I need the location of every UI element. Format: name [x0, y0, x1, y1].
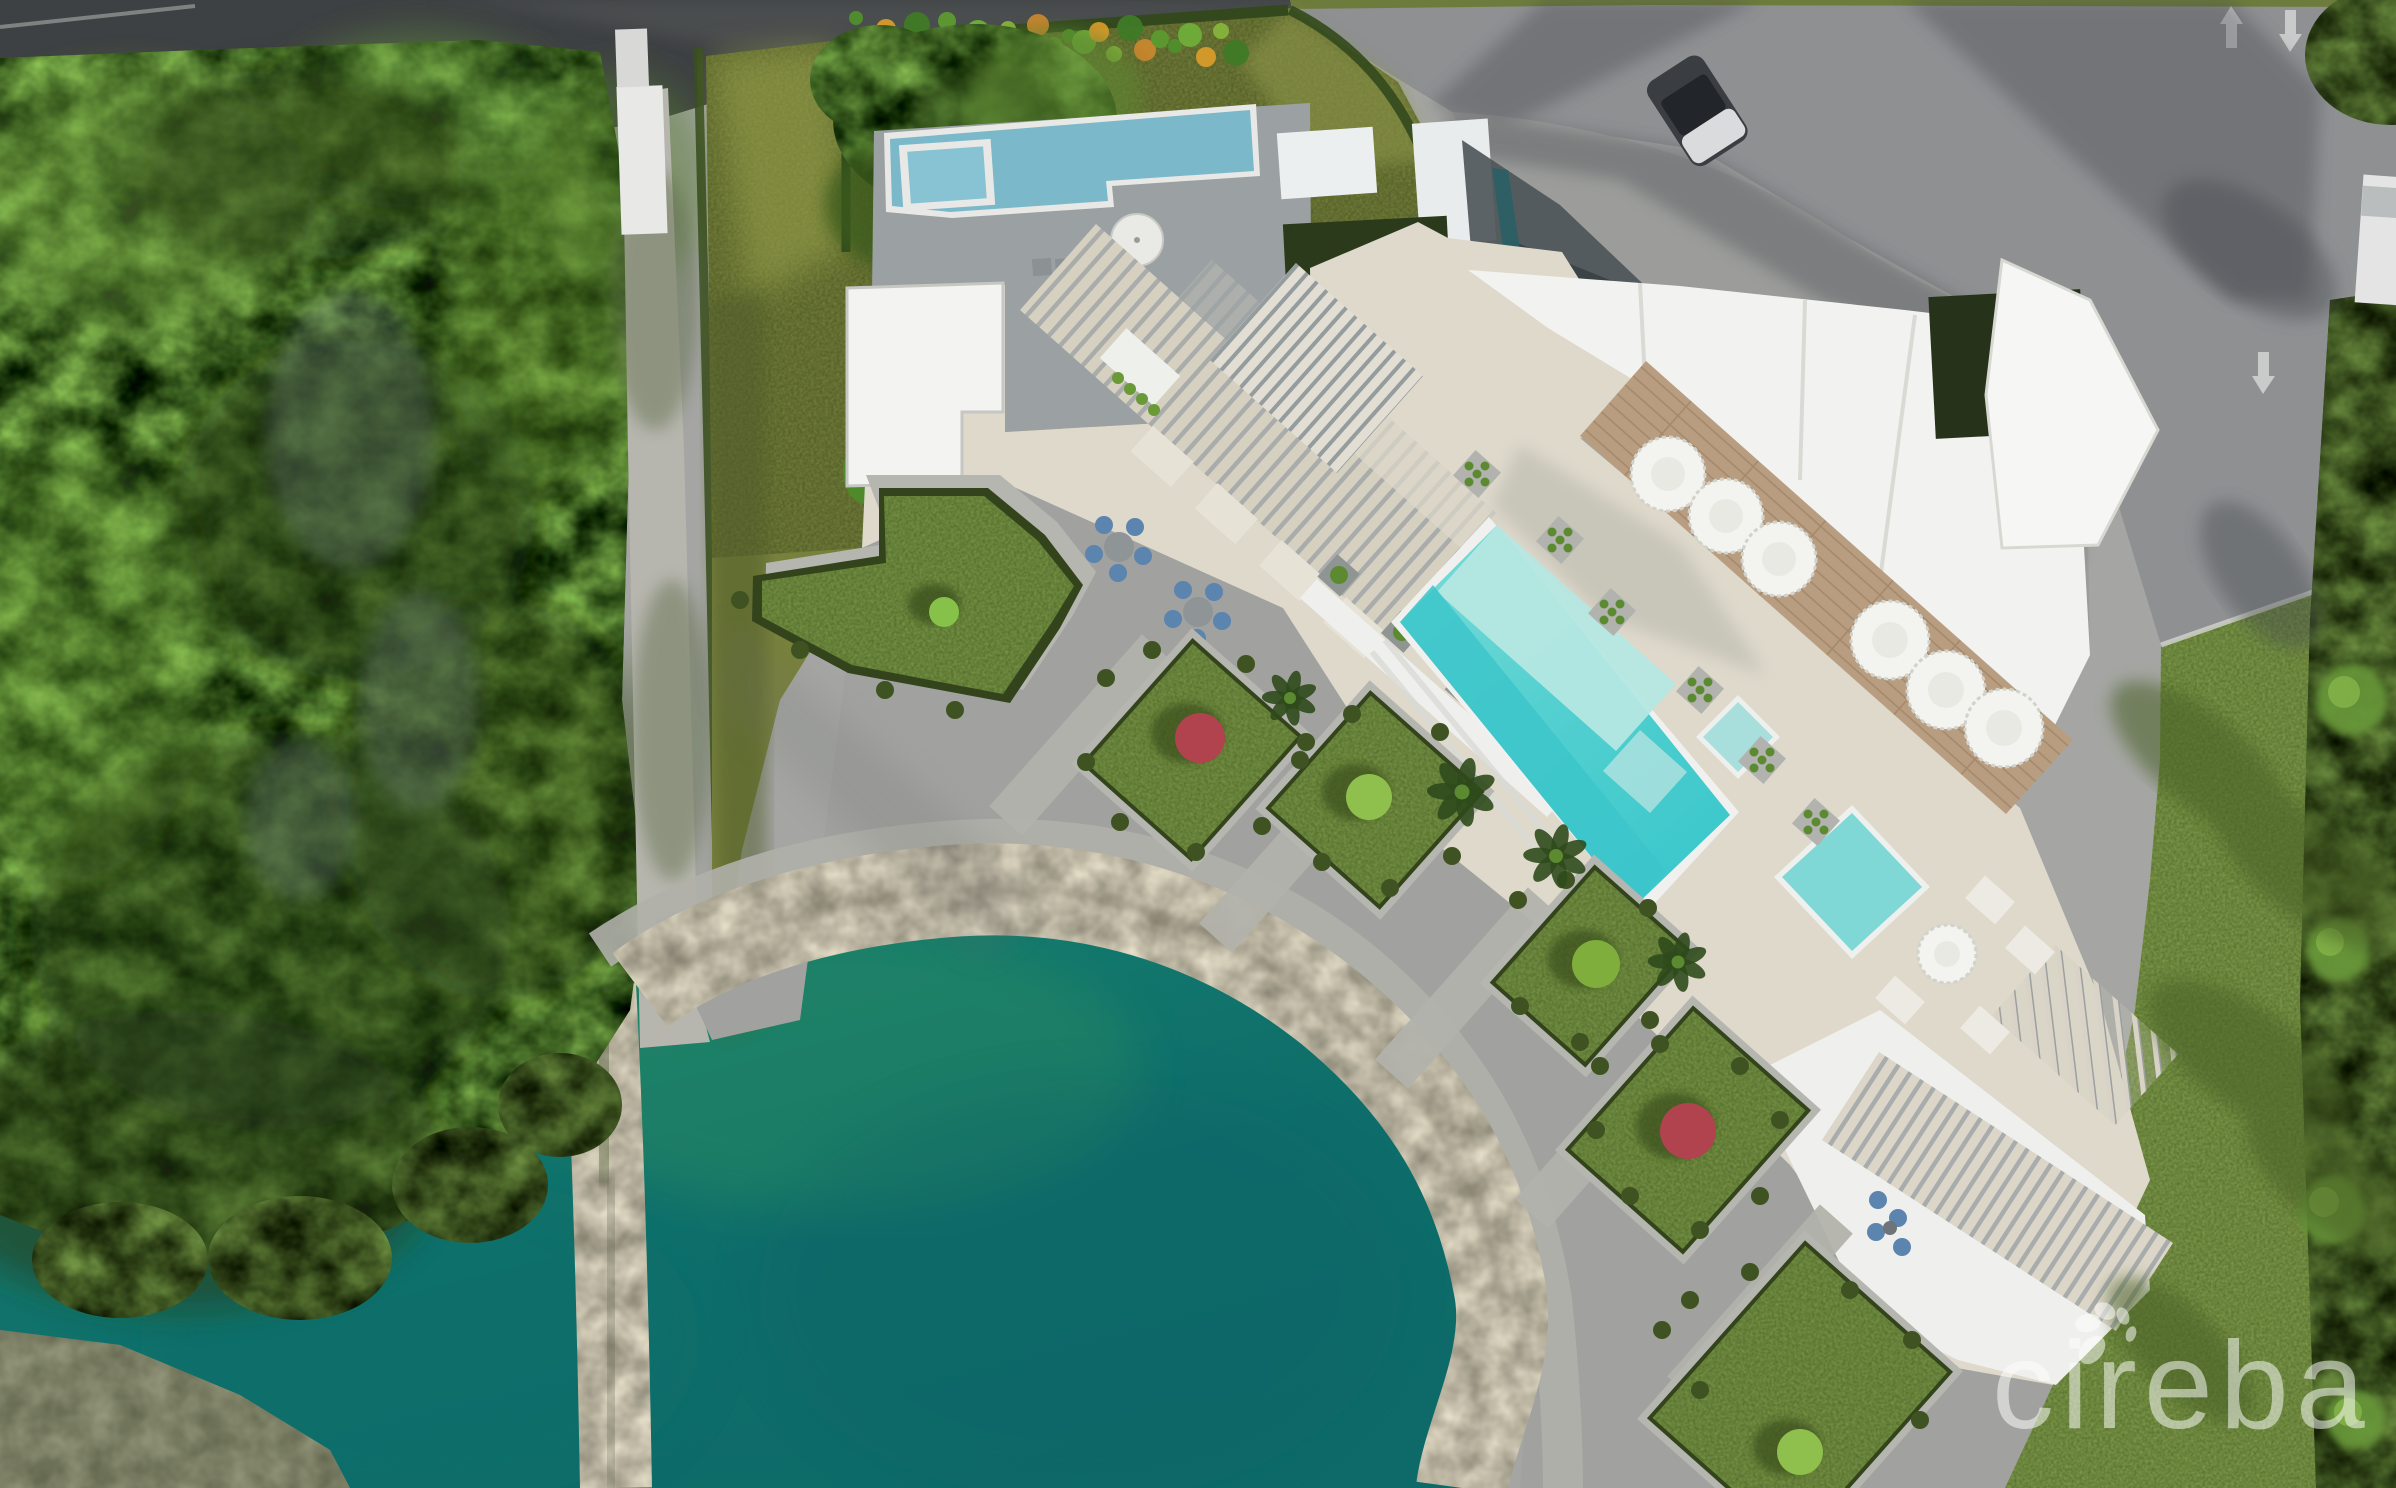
svg-text:cireba: cireba: [1992, 1317, 2372, 1455]
